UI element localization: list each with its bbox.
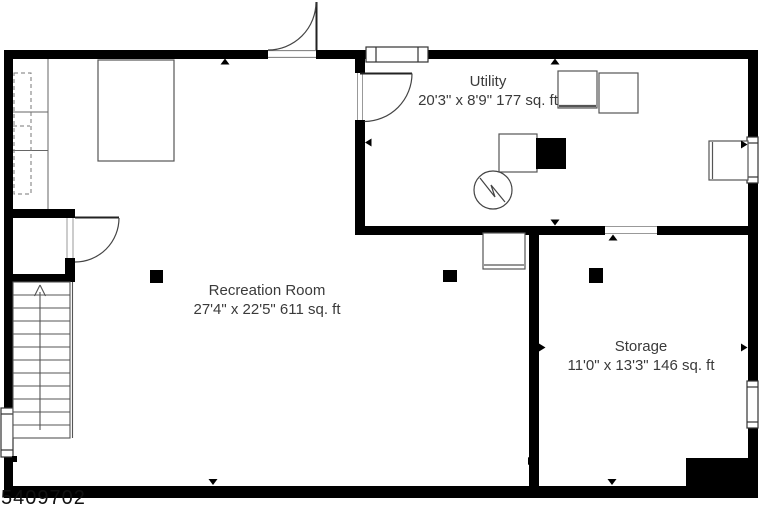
wall-right [748,50,758,498]
door-exterior-top [268,2,317,59]
room-name: Storage [567,337,714,356]
door-swing-arc [75,218,119,262]
room-label-recreation-room: Recreation Room 27'4" x 22'5" 611 sq. ft [193,281,340,319]
window-right-storage [747,381,758,428]
door-swing-arc [268,2,316,50]
door-utility [355,73,412,122]
closet-wall-top [9,209,75,218]
utility-storage-opening [605,227,657,234]
dryer [599,73,638,113]
tick-down [608,479,617,485]
window-left [1,408,13,457]
closet-shelving [13,59,48,209]
utility-left-wall-lower [355,120,365,235]
closet-wall-bottom [9,274,75,282]
bed [98,60,174,161]
door-closet [67,218,119,263]
tick-up [609,235,618,241]
staircase [13,282,73,438]
tick-up [221,59,230,65]
tick-up [551,59,560,65]
tick-down [551,220,560,226]
utility-bottom-wall-right [657,226,748,235]
storage-left-wall [529,226,539,486]
floor-plan-drawing [0,0,768,509]
furnace [499,134,537,172]
pump-symbol [474,171,512,209]
tick-right [741,344,748,352]
utility-left-wall-upper [355,58,365,73]
floor-plan-page: Utility 20'3" x 8'9" 177 sq. ft Recreati… [0,0,768,509]
listing-number: 5409702 [1,487,86,509]
room-dimensions: 27'4" x 22'5" 611 sq. ft [193,300,340,319]
room-label-storage: Storage 11'0" x 13'3" 146 sq. ft [567,337,714,375]
tick-right [539,344,546,352]
window-top [366,47,428,62]
room-name: Recreation Room [193,281,340,300]
window-sill-tick [12,456,17,462]
wardrobe-dashed-outline [14,73,31,194]
room-name: Utility [418,72,558,91]
corner-structure-block [686,458,758,488]
washer [558,71,597,108]
wall-bottom [4,486,758,498]
room-label-utility: Utility 20'3" x 8'9" 177 sq. ft [418,72,558,110]
door-swing-arc [365,74,413,122]
window-right-utility [747,137,758,183]
room-dimensions: 11'0" x 13'3" 146 sq. ft [567,356,714,375]
furnace-unit-black [536,138,566,169]
tick-down [209,479,218,485]
wall-tick-markers [209,59,748,486]
room-dimensions: 20'3" x 8'9" 177 sq. ft [418,91,558,110]
sink-cabinet [483,233,525,269]
column [150,270,163,283]
column [589,268,603,283]
utility-bottom-wall-left [355,226,605,235]
column [443,270,457,282]
tick-left [365,139,372,147]
